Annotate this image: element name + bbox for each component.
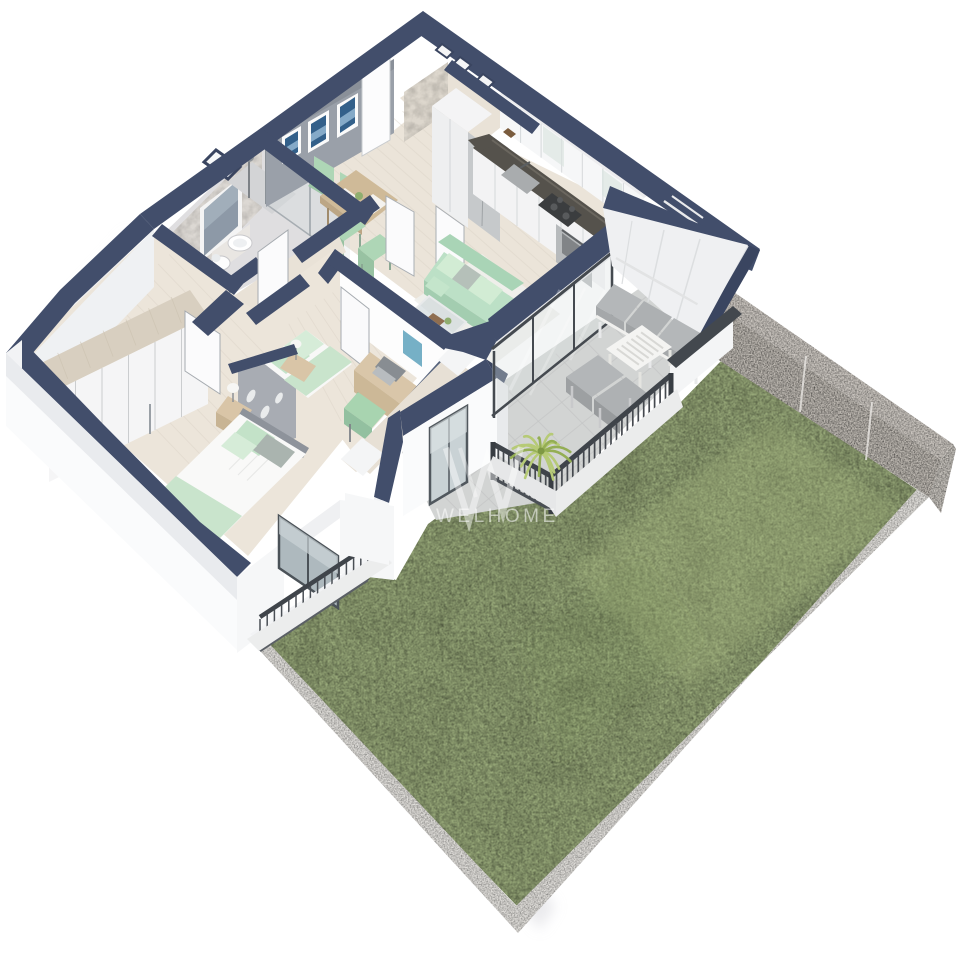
svg-text:WELHOME: WELHOME [436,506,559,527]
